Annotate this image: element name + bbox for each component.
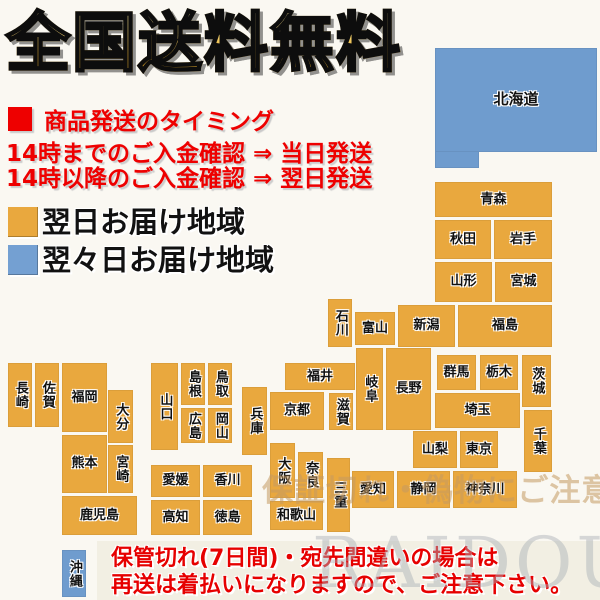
map-block: 千葉 [524,410,552,472]
map-block: 北海道 [435,48,597,152]
map-block: 岡山 [208,408,232,443]
map-block-label: 大阪 [276,457,290,485]
warning-line-1: 保管切れ(7日間)・宛先間違いの場合は [111,545,600,572]
warning-line-2: 再送は着払いになりますので、ご注意下さい。 [111,572,600,599]
promo-banner: 全国送料無料 商品発送のタイミング 14時までのご入金確認 ⇒ 当日発送 14時… [0,0,600,600]
map-block: 栃木 [480,355,518,390]
storage-warning-box: 保管切れ(7日間)・宛先間違いの場合は 再送は着払いになりますので、ご注意下さい… [97,541,600,600]
map-block: 長野 [386,348,431,430]
map-block: 香川 [203,465,252,497]
map-block-label: 沖縄 [67,560,81,588]
map-block-label: 徳島 [214,511,240,525]
map-block-label: 石川 [333,309,347,337]
map-block-label: 山口 [158,393,172,421]
map-block: 鳥取 [208,363,232,405]
map-block-label: 高知 [162,511,188,525]
map-block: 富山 [355,312,395,345]
map-block-label: 佐賀 [40,381,54,409]
map-block-label: 香川 [214,474,240,488]
map-block-label: 栃木 [486,366,512,380]
map-block: 高知 [151,500,200,535]
map-block-label: 愛知 [360,483,386,497]
map-block-label: 大分 [114,403,128,431]
map-block: 滋賀 [329,393,353,430]
map-block: 愛知 [352,471,394,508]
map-block: 徳島 [203,500,252,535]
map-block: 山形 [435,262,492,302]
map-block-label: 山梨 [422,443,448,457]
map-block: 宮城 [495,262,552,302]
map-block-label: 新潟 [413,319,439,333]
map-block: 大分 [108,390,133,443]
map-block-label: 福島 [492,319,518,333]
map-block-label: 山形 [450,275,476,289]
map-block-label: 福井 [307,370,333,384]
map-block-label: 長崎 [13,381,27,409]
map-block: 島根 [181,363,205,405]
map-block: 岐阜 [356,348,383,430]
map-block: 静岡 [397,471,450,508]
map-block: 京都 [270,392,324,430]
map-block: 青森 [435,182,552,217]
map-block-label: 岐阜 [363,375,377,403]
map-block-label: 三重 [332,481,346,509]
map-block: 和歌山 [270,501,323,530]
map-block: 新潟 [398,305,455,347]
map-block: 福島 [458,305,552,347]
map-block-label: 秋田 [450,233,476,247]
map-block-label: 鳥取 [213,370,227,398]
map-block-label: 埼玉 [464,404,490,418]
map-block-label: 神奈川 [465,483,504,497]
map-block-label: 愛媛 [162,474,188,488]
map-block: 群馬 [437,355,476,390]
map-block-label: 宮城 [510,275,536,289]
map-block-label: 和歌山 [277,509,316,523]
map-block-label: 滋賀 [334,398,348,426]
map-block-label: 京都 [284,404,310,418]
map-block: 奈良 [298,452,323,498]
map-block: 石川 [328,299,352,347]
map-block: 佐賀 [35,363,59,427]
map-block-label: 長野 [395,382,421,396]
japan-map: 北海道青森秋田岩手山形宮城新潟福島石川富山群馬栃木茨城埼玉長野岐阜山梨東京千葉神… [0,0,600,600]
map-block-label: 富山 [362,322,388,336]
map-block: 福岡 [62,363,107,432]
map-block-label: 島根 [186,370,200,398]
map-block-label: 宮崎 [114,455,128,483]
map-block-label: 奈良 [304,461,318,489]
map-block: 神奈川 [453,471,517,508]
map-block-label: 岩手 [510,233,536,247]
map-block: 秋田 [435,220,491,259]
map-block: 宮崎 [108,445,133,493]
map-block-label: 静岡 [410,483,436,497]
map-block-label: 茨城 [530,367,544,395]
map-block: 岩手 [494,220,552,259]
map-shape [435,150,479,168]
map-block-label: 北海道 [493,92,538,108]
map-block: 兵庫 [242,387,267,455]
map-block-label: 熊本 [71,457,97,471]
map-block: 鹿児島 [62,496,137,535]
map-block: 茨城 [522,355,551,407]
map-block: 福井 [285,363,355,390]
map-block-label: 青森 [480,193,506,207]
map-block-label: 兵庫 [248,407,262,435]
map-block: 埼玉 [435,393,520,428]
map-block-label: 群馬 [443,366,469,380]
map-block: 大阪 [270,443,295,498]
map-block: 山梨 [413,431,457,468]
map-block: 広島 [181,408,205,443]
map-block: 長崎 [8,363,32,427]
map-block-label: 岡山 [213,412,227,440]
map-block: 山口 [151,363,178,450]
map-block: 三重 [327,458,350,532]
map-block-label: 福岡 [71,391,97,405]
map-block-label: 千葉 [531,427,545,455]
map-block: 東京 [460,431,498,468]
map-block: 愛媛 [151,465,200,497]
map-block: 熊本 [62,435,107,493]
map-block-label: 東京 [466,443,492,457]
map-block-label: 広島 [186,412,200,440]
map-block-label: 鹿児島 [80,509,119,523]
map-block: 沖縄 [62,550,86,597]
